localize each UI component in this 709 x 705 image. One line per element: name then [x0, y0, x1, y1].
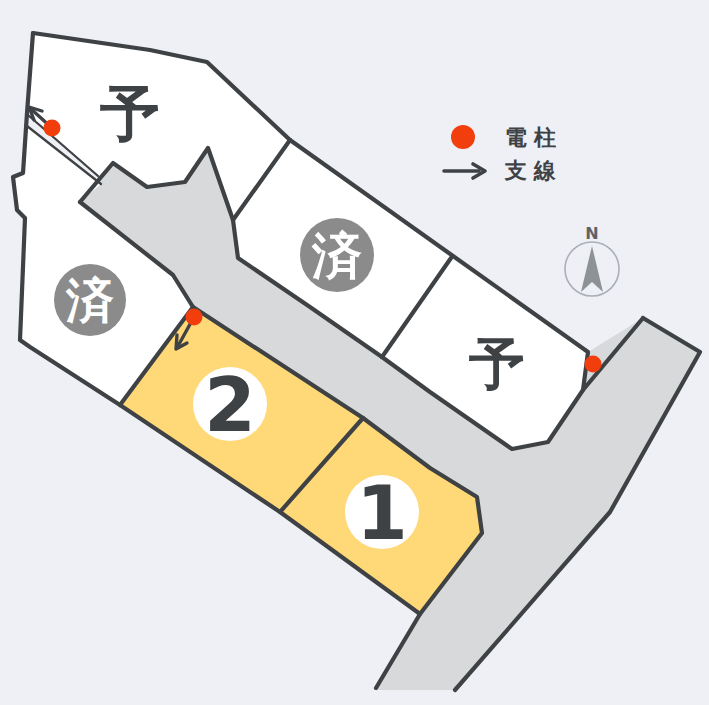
sold-badge-left: 済 — [54, 264, 126, 336]
site-plan-svg: 予 予 済 済 2 1 電柱 — [0, 0, 709, 705]
utility-pole-dot-1 — [44, 120, 61, 137]
lot-2-number: 2 — [204, 362, 256, 448]
lot-1-number: 1 — [356, 470, 408, 556]
sold-badge-left-label: 済 — [65, 272, 114, 328]
legend-pole-dot — [451, 125, 475, 149]
sold-badge-center-label: 済 — [311, 227, 362, 285]
sold-badge-center: 済 — [300, 218, 374, 292]
legend-wire-label: 支線 — [504, 158, 563, 183]
lot-reserved-right-label: 予 — [468, 331, 525, 396]
site-plan: 予 予 済 済 2 1 電柱 — [0, 0, 709, 705]
lot-reserved-top-label: 予 — [100, 78, 160, 148]
compass-north-label: N — [585, 224, 598, 243]
legend-pole-label: 電柱 — [505, 125, 563, 150]
utility-pole-dot-2 — [186, 309, 203, 326]
utility-pole-dot-3 — [585, 356, 602, 373]
